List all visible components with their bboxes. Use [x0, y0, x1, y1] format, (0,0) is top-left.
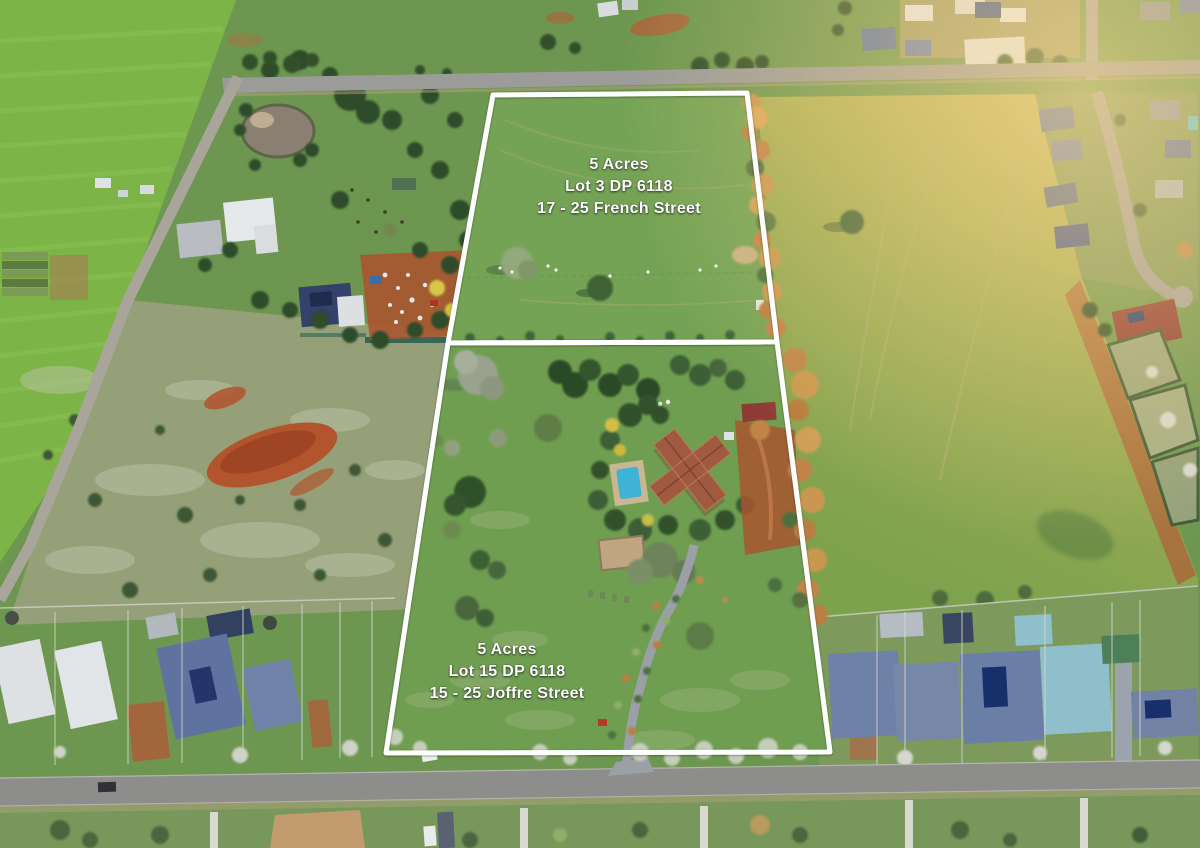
- sun-glare: [540, 0, 1200, 660]
- aerial-photo-svg: [0, 0, 1200, 848]
- aerial-photo: 5 Acres Lot 3 DP 6118 17 - 25 French Str…: [0, 0, 1200, 848]
